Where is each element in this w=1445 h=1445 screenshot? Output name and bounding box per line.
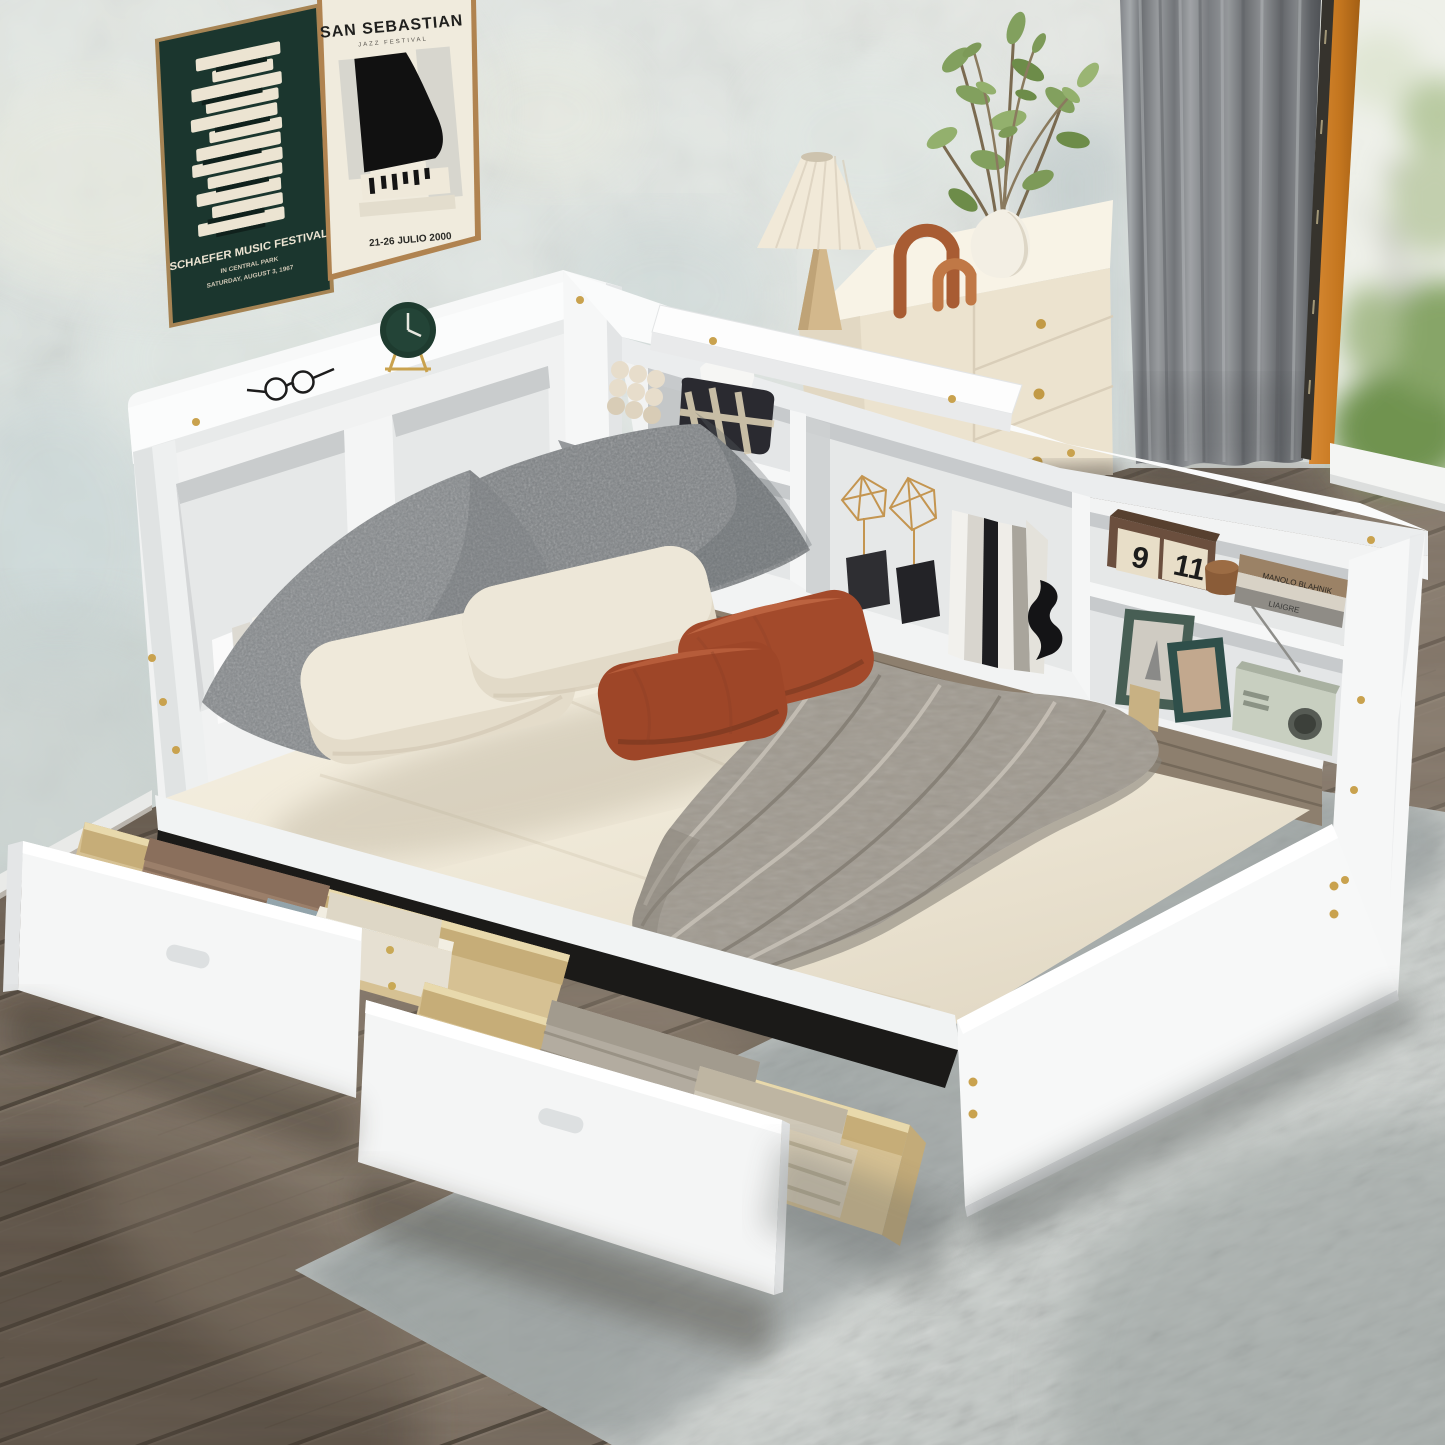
- svg-text:11: 11: [1171, 549, 1209, 588]
